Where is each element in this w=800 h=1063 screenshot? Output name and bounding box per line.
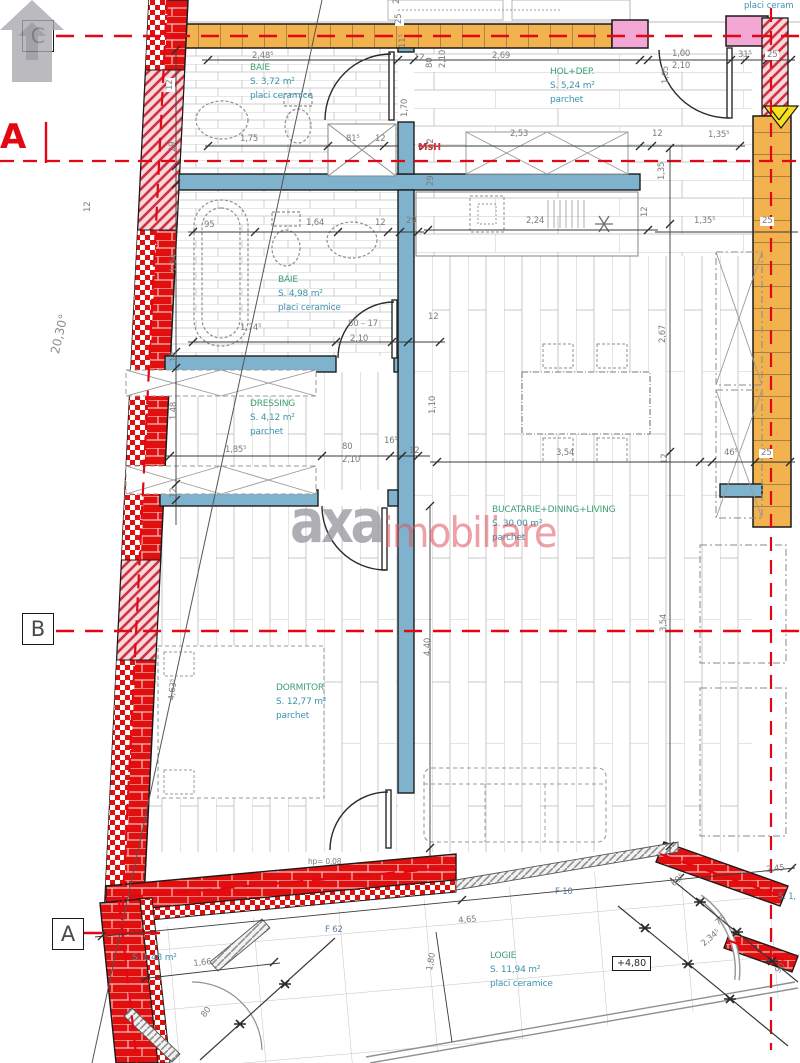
- floor-plan: BAIES. 3,72 m²placi ceramiceHOL+DEP.S. 5…: [0, 0, 800, 1063]
- watermark-brand-gray: axa: [290, 492, 382, 552]
- house-icon: [0, 0, 64, 82]
- watermark-brand-red: imobiliare: [383, 512, 556, 554]
- watermark: axa imobiliare: [0, 0, 800, 1063]
